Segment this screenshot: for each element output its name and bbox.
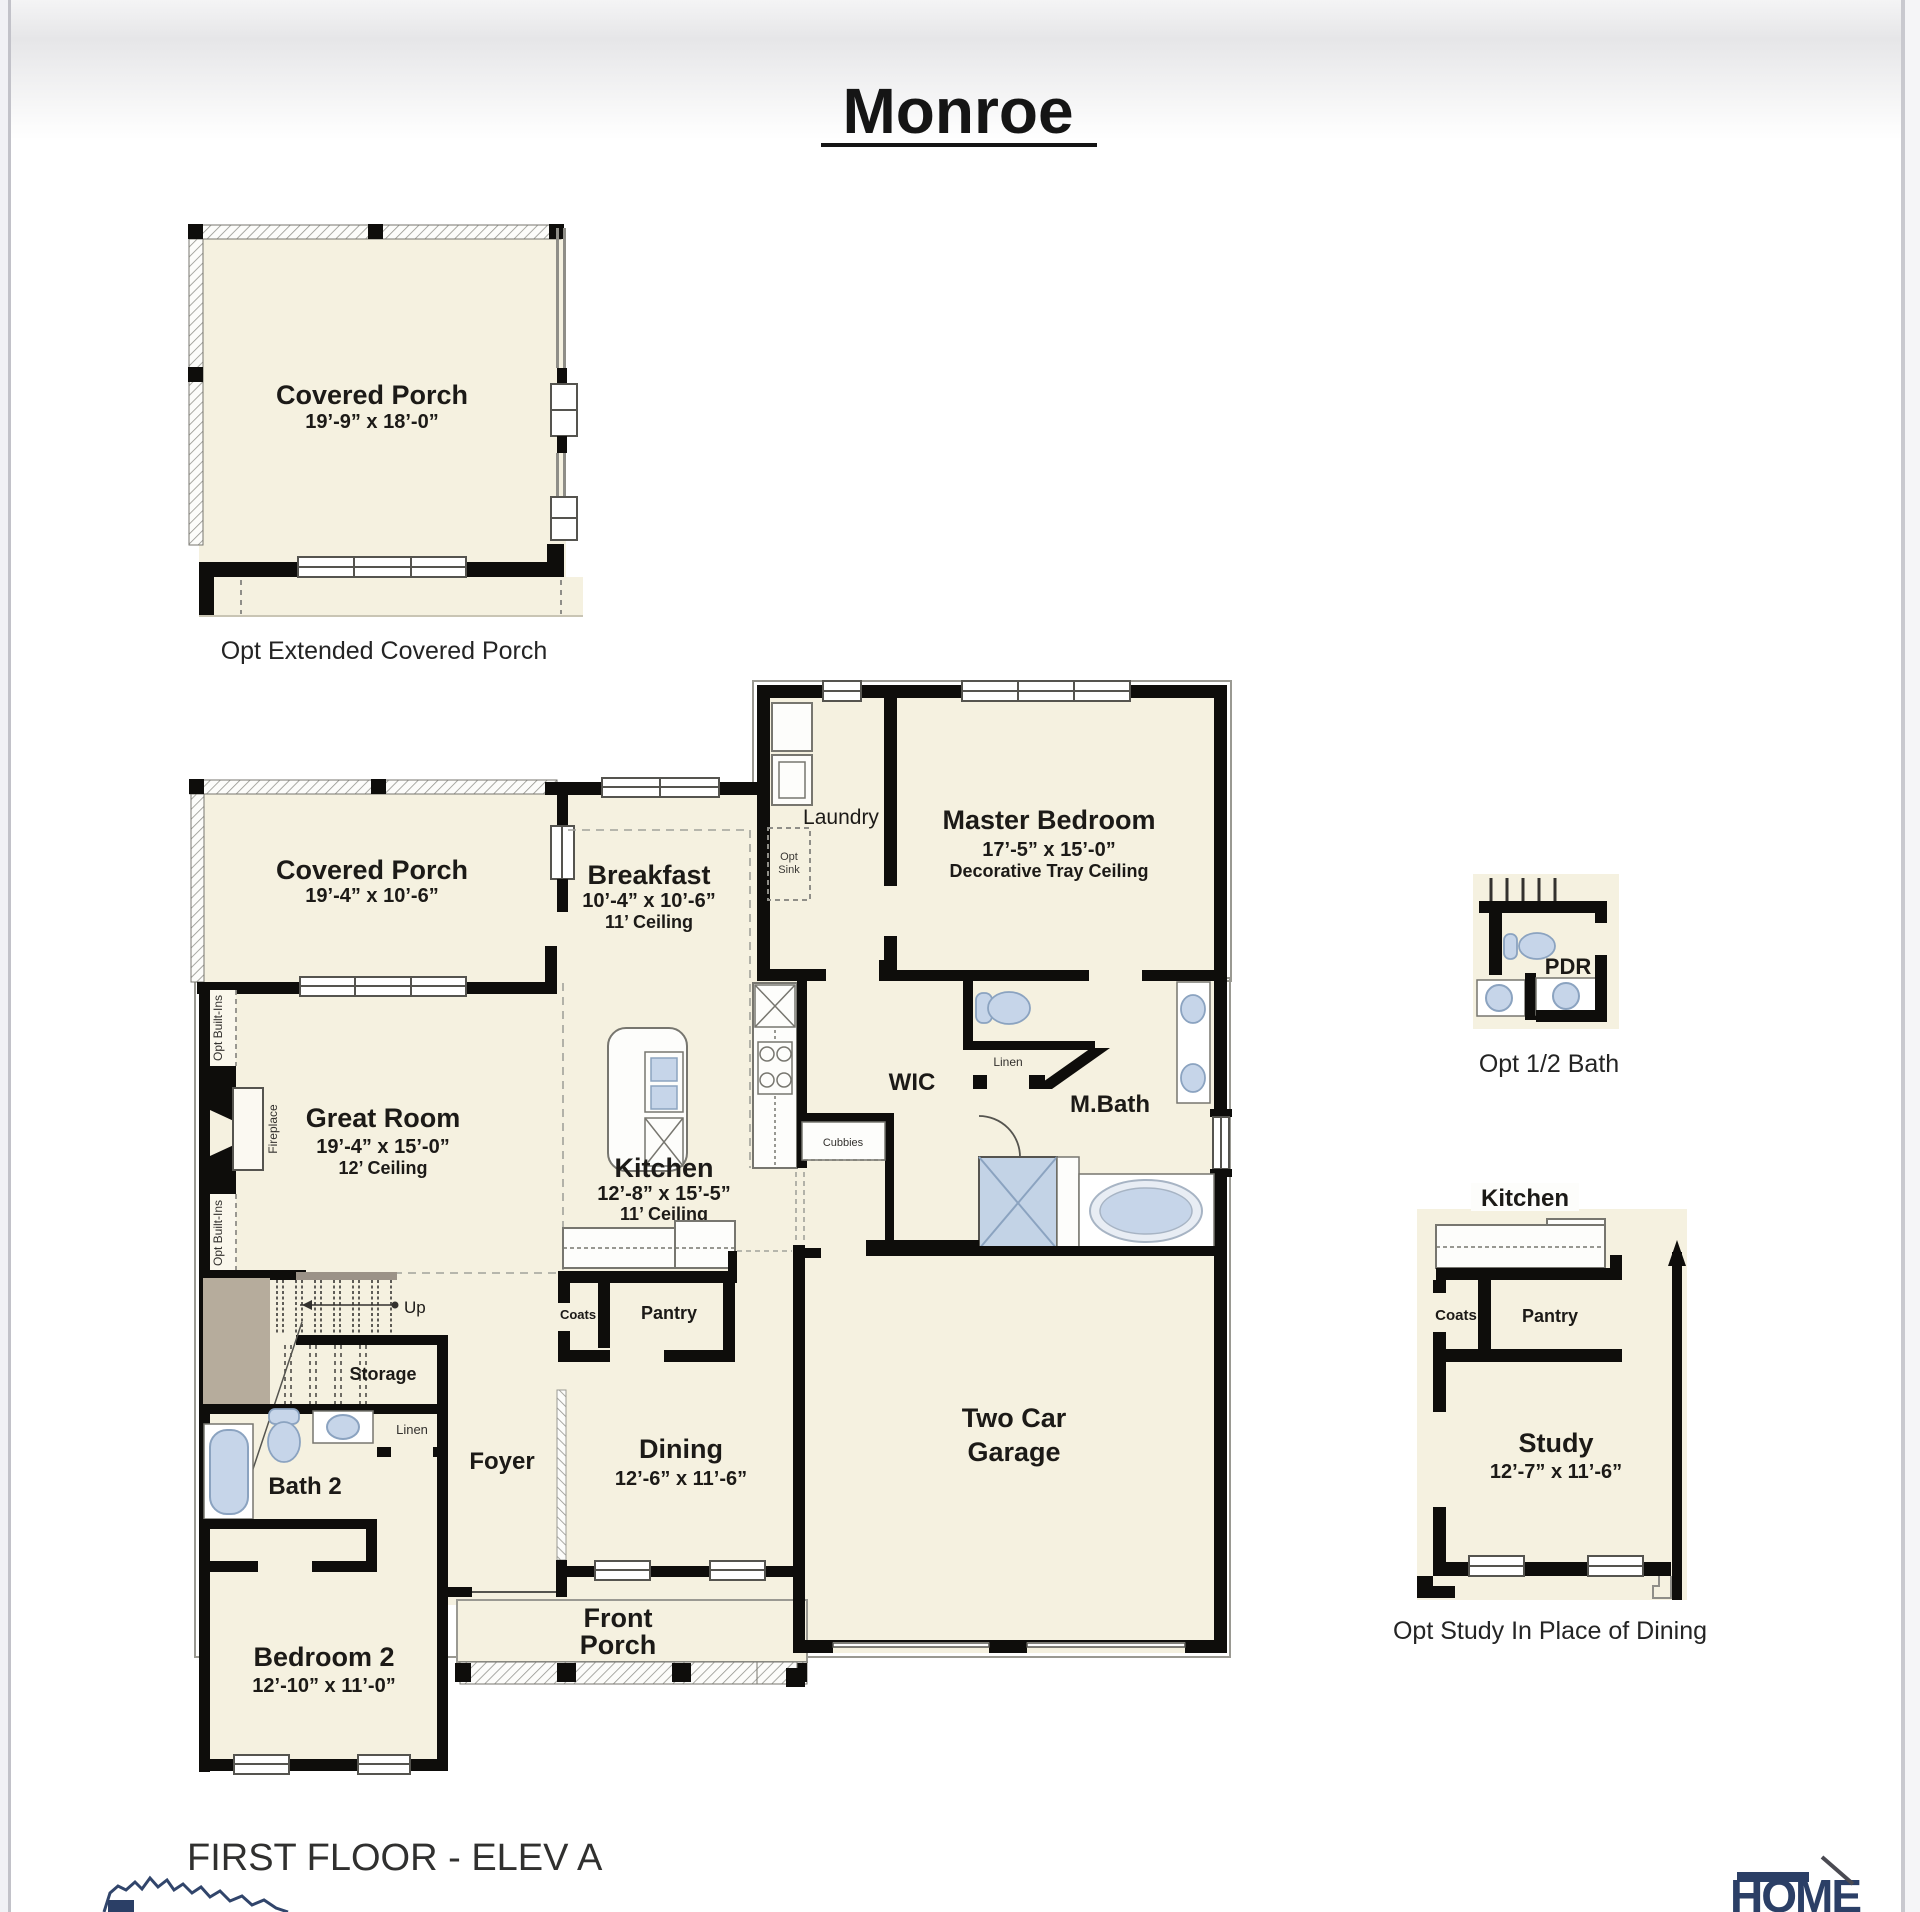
svg-text:11’ Ceiling: 11’ Ceiling — [605, 912, 693, 932]
svg-text:Opt Built-Ins: Opt Built-Ins — [211, 1200, 225, 1266]
svg-text:Storage: Storage — [349, 1364, 416, 1384]
svg-text:FIRST FLOOR - ELEV A: FIRST FLOOR - ELEV A — [187, 1837, 603, 1879]
svg-text:Porch: Porch — [580, 1630, 657, 1660]
svg-text:Master Bedroom: Master Bedroom — [942, 805, 1155, 835]
svg-text:Study: Study — [1518, 1428, 1593, 1458]
svg-text:Sink: Sink — [778, 864, 800, 876]
svg-text:19’-9” x 18’-0”: 19’-9” x 18’-0” — [305, 411, 438, 433]
svg-text:12’-7” x 11’-6”: 12’-7” x 11’-6” — [1490, 1461, 1622, 1483]
svg-text:Up: Up — [404, 1298, 426, 1317]
svg-text:Coats: Coats — [1435, 1307, 1477, 1324]
svg-text:Foyer: Foyer — [469, 1448, 534, 1475]
svg-text:Two Car: Two Car — [962, 1403, 1067, 1433]
svg-text:M.Bath: M.Bath — [1070, 1091, 1150, 1118]
svg-text:12’-6” x 11’-6”: 12’-6” x 11’-6” — [615, 1468, 747, 1490]
svg-text:19’-4” x 10’-6”: 19’-4” x 10’-6” — [305, 885, 438, 907]
svg-text:Opt Study In Place of Dining: Opt Study In Place of Dining — [1393, 1617, 1707, 1645]
svg-text:Opt Extended Covered Porch: Opt Extended Covered Porch — [221, 637, 548, 665]
svg-text:Laundry: Laundry — [803, 806, 879, 829]
svg-text:12’ Ceiling: 12’ Ceiling — [338, 1158, 427, 1178]
svg-text:Opt: Opt — [780, 851, 798, 863]
svg-text:Linen: Linen — [993, 1055, 1022, 1069]
svg-text:10’-4” x 10’-6”: 10’-4” x 10’-6” — [582, 890, 715, 912]
svg-text:Great Room: Great Room — [306, 1103, 461, 1133]
svg-text:Decorative Tray Ceiling: Decorative Tray Ceiling — [949, 861, 1148, 881]
svg-text:Covered Porch: Covered Porch — [276, 855, 468, 885]
svg-text:PDR: PDR — [1545, 954, 1592, 979]
svg-text:Fireplace: Fireplace — [266, 1104, 280, 1154]
svg-text:Coats: Coats — [560, 1307, 596, 1322]
svg-text:Dining: Dining — [639, 1434, 723, 1464]
svg-text:12’-10” x 11’-0”: 12’-10” x 11’-0” — [252, 1675, 395, 1697]
svg-text:Opt Built-Ins: Opt Built-Ins — [211, 995, 225, 1061]
svg-text:Pantry: Pantry — [1522, 1306, 1578, 1326]
svg-text:Kitchen: Kitchen — [614, 1153, 713, 1183]
svg-text:12’-8” x 15’-5”: 12’-8” x 15’-5” — [597, 1183, 730, 1205]
svg-text:Monroe: Monroe — [842, 75, 1073, 147]
svg-text:Opt 1/2 Bath: Opt 1/2 Bath — [1479, 1050, 1619, 1078]
svg-text:WIC: WIC — [889, 1069, 936, 1096]
svg-text:Kitchen: Kitchen — [1481, 1185, 1569, 1212]
svg-text:Cubbies: Cubbies — [823, 1137, 864, 1149]
svg-text:Front: Front — [584, 1603, 653, 1633]
svg-text:19’-4” x 15’-0”: 19’-4” x 15’-0” — [316, 1136, 449, 1158]
svg-text:17’-5” x 15’-0”: 17’-5” x 15’-0” — [982, 839, 1115, 861]
svg-text:Garage: Garage — [967, 1437, 1060, 1467]
svg-text:Linen: Linen — [396, 1422, 428, 1437]
svg-text:Bedroom 2: Bedroom 2 — [253, 1642, 394, 1672]
svg-text:Pantry: Pantry — [641, 1303, 697, 1323]
svg-text:Bath 2: Bath 2 — [268, 1473, 341, 1500]
svg-text:Covered Porch: Covered Porch — [276, 380, 468, 410]
svg-text:Breakfast: Breakfast — [587, 860, 710, 890]
